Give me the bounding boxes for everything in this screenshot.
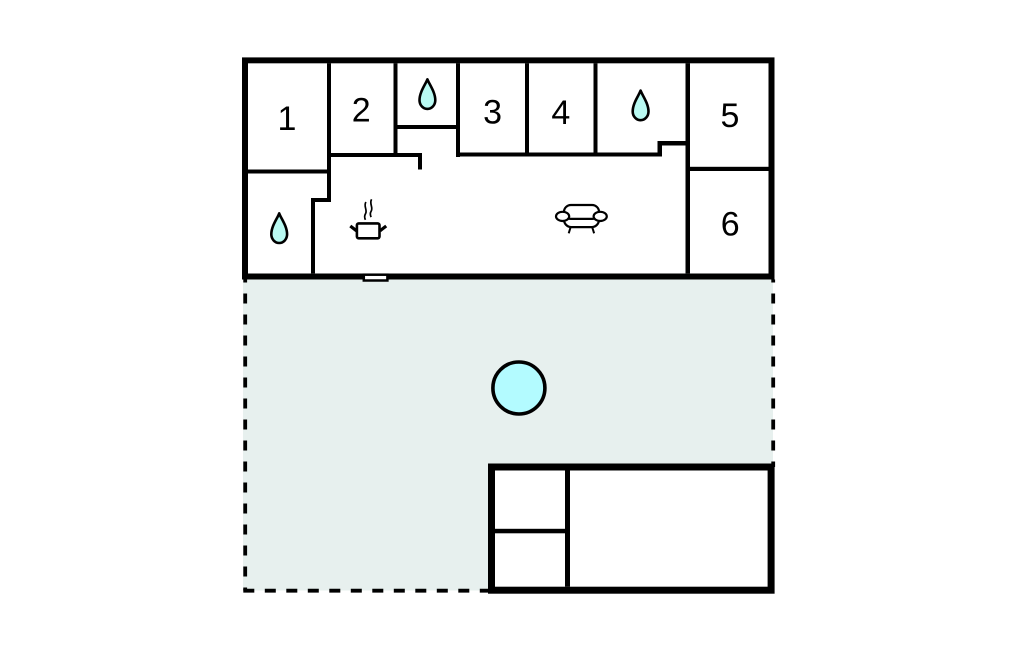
svg-text:3: 3 [483, 93, 502, 131]
svg-text:1: 1 [278, 100, 297, 138]
svg-text:2: 2 [352, 91, 371, 129]
svg-text:5: 5 [721, 97, 740, 135]
svg-text:6: 6 [721, 206, 740, 244]
svg-text:4: 4 [551, 94, 570, 132]
